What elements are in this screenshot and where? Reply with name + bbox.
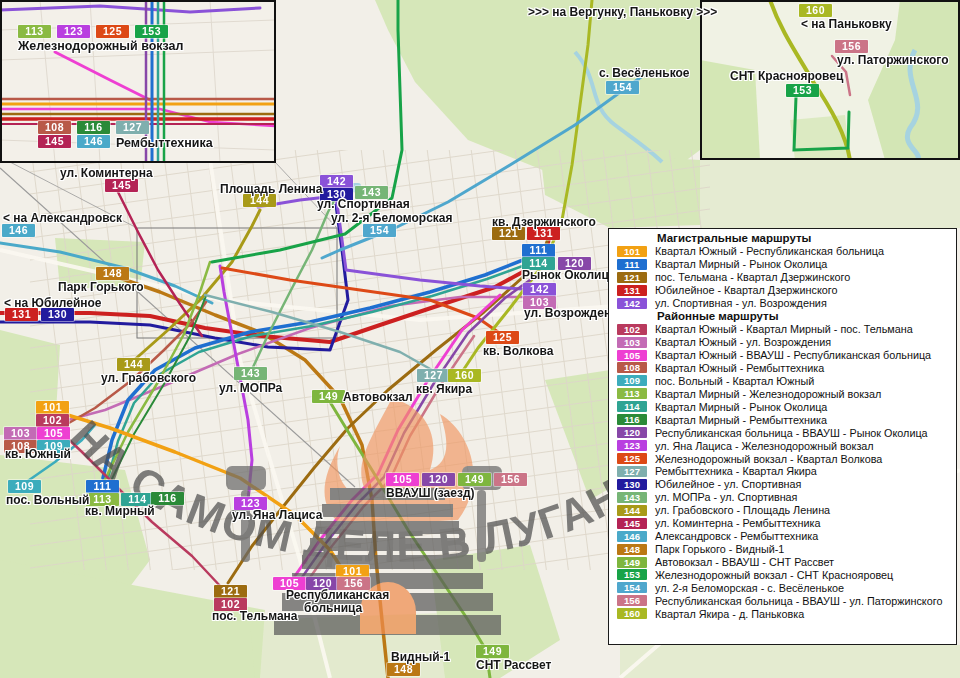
legend-badge-160: 160 bbox=[617, 608, 647, 619]
legend-badge-142: 142 bbox=[617, 298, 647, 309]
legend-badge-153: 153 bbox=[617, 569, 647, 580]
legend-route-name: Квартал Якира - д. Паньковка bbox=[655, 608, 804, 620]
legend-row-101: 101Квартал Южный - Республиканская больн… bbox=[617, 245, 952, 258]
legend-badge-101: 101 bbox=[617, 246, 647, 257]
legend-route-name: Квартал Мирный - Рембыттехника bbox=[655, 414, 827, 426]
legend-row-154: 154ул. 2-я Беломорская - с. Весёленькое bbox=[617, 581, 952, 594]
legend-badge-105: 105 bbox=[617, 350, 647, 361]
legend-badge-154: 154 bbox=[617, 582, 647, 593]
legend-route-name: Квартал Южный - Республиканская больница bbox=[655, 245, 884, 257]
legend-badge-144: 144 bbox=[617, 505, 647, 516]
legend-route-name: ул. Коминтерна - Рембыттехника bbox=[655, 517, 820, 529]
legend-badge-114: 114 bbox=[617, 401, 647, 412]
legend-badge-156: 156 bbox=[617, 595, 647, 606]
legend-row-116: 116Квартал Мирный - Рембыттехника bbox=[617, 413, 952, 426]
legend-panel: Магистральные маршруты 101Квартал Южный … bbox=[608, 228, 957, 645]
legend-badge-146: 146 bbox=[617, 531, 647, 542]
legend-route-name: Парк Горького - Видный-1 bbox=[655, 543, 784, 555]
legend-route-name: Железнодорожный вокзал - Квартал Волкова bbox=[655, 453, 882, 465]
legend-main-rows: 101Квартал Южный - Республиканская больн… bbox=[617, 245, 952, 310]
legend-badge-102: 102 bbox=[617, 324, 647, 335]
legend-badge-113: 113 bbox=[617, 388, 647, 399]
legend-row-114: 114Квартал Мирный - Рынок Околица bbox=[617, 400, 952, 413]
legend-badge-149: 149 bbox=[617, 557, 647, 568]
legend-route-name: ул. МОПРа - ул. Спортивная bbox=[655, 491, 797, 503]
legend-route-name: Автовокзал - ВВАУШ - СНТ Рассвет bbox=[655, 556, 834, 568]
legend-row-131: 131Юбилейное - Квартал Дзержинского bbox=[617, 284, 952, 297]
legend-row-103: 103Квартал Южный - ул. Возрождения bbox=[617, 336, 952, 349]
legend-row-149: 149Автовокзал - ВВАУШ - СНТ Рассвет bbox=[617, 556, 952, 569]
legend-row-145: 145ул. Коминтерна - Рембыттехника bbox=[617, 517, 952, 530]
legend-row-130: 130Юбилейное - ул. Спортивная bbox=[617, 478, 952, 491]
transit-map-screenshot: НА САМОМ ДЕЛЕ В ЛУГАНСКЕ 113123125153108… bbox=[0, 0, 960, 678]
legend-route-name: Железнодорожный вокзал - СНТ Красноярове… bbox=[655, 569, 893, 581]
legend-row-148: 148Парк Горького - Видный-1 bbox=[617, 543, 952, 556]
legend-row-102: 102Квартал Южный - Квартал Мирный - пос.… bbox=[617, 323, 952, 336]
legend-route-name: ул. Спортивная - ул. Возрождения bbox=[655, 297, 827, 309]
inset-pankovka-zoom bbox=[700, 0, 960, 160]
legend-badge-121: 121 bbox=[617, 272, 647, 283]
legend-row-109: 109пос. Вольный - Квартал Южный bbox=[617, 374, 952, 387]
legend-row-108: 108Квартал Южный - Рембыттехника bbox=[617, 362, 952, 375]
legend-row-142: 142ул. Спортивная - ул. Возрождения bbox=[617, 297, 952, 310]
legend-badge-116: 116 bbox=[617, 414, 647, 425]
legend-route-name: пос. Тельмана - Квартал Дзержинского bbox=[655, 271, 850, 283]
legend-route-name: Республиканская больница - ВВАУШ - Рынок… bbox=[655, 427, 928, 439]
legend-badge-108: 108 bbox=[617, 362, 647, 373]
legend-route-name: Юбилейное - ул. Спортивная bbox=[655, 478, 801, 490]
legend-route-name: Квартал Южный - Квартал Мирный - пос. Те… bbox=[655, 323, 913, 335]
legend-row-121: 121пос. Тельмана - Квартал Дзержинского bbox=[617, 271, 952, 284]
legend-badge-125: 125 bbox=[617, 453, 647, 464]
legend-district-rows: 102Квартал Южный - Квартал Мирный - пос.… bbox=[617, 323, 952, 621]
legend-main-header: Магистральные маршруты bbox=[617, 232, 952, 245]
legend-route-name: Рембыттехника - Квартал Якира bbox=[655, 465, 817, 477]
legend-row-111: 111Квартал Мирный - Рынок Околица bbox=[617, 258, 952, 271]
legend-row-123: 123ул. Яна Лациса - Железнодорожный вокз… bbox=[617, 439, 952, 452]
legend-route-name: пос. Вольный - Квартал Южный bbox=[655, 375, 814, 387]
legend-badge-111: 111 bbox=[617, 259, 647, 270]
legend-route-name: Квартал Мирный - Рынок Околица bbox=[655, 401, 827, 413]
legend-badge-123: 123 bbox=[617, 440, 647, 451]
legend-badge-131: 131 bbox=[617, 285, 647, 296]
legend-route-name: ул. Грабовского - Площадь Ленина bbox=[655, 504, 830, 516]
legend-badge-109: 109 bbox=[617, 375, 647, 386]
legend-row-144: 144ул. Грабовского - Площадь Ленина bbox=[617, 504, 952, 517]
legend-route-name: Квартал Южный - Рембыттехника bbox=[655, 362, 824, 374]
legend-row-113: 113Квартал Мирный - Железнодорожный вокз… bbox=[617, 387, 952, 400]
legend-badge-148: 148 bbox=[617, 544, 647, 555]
legend-badge-103: 103 bbox=[617, 337, 647, 348]
legend-route-name: Квартал Мирный - Железнодорожный вокзал bbox=[655, 388, 881, 400]
legend-route-name: Александровск - Рембыттехника bbox=[655, 530, 818, 542]
pond bbox=[346, 183, 361, 192]
legend-badge-143: 143 bbox=[617, 492, 647, 503]
legend-row-105: 105Квартал Южный - ВВАУШ - Республиканск… bbox=[617, 349, 952, 362]
legend-route-name: Квартал Южный - ВВАУШ - Республиканская … bbox=[655, 349, 931, 361]
legend-row-125: 125Железнодорожный вокзал - Квартал Волк… bbox=[617, 452, 952, 465]
legend-badge-130: 130 bbox=[617, 479, 647, 490]
legend-district-header: Районные маршруты bbox=[617, 310, 952, 323]
legend-route-name: ул. 2-я Беломорская - с. Весёленькое bbox=[655, 582, 844, 594]
legend-row-146: 146Александровск - Рембыттехника bbox=[617, 530, 952, 543]
legend-route-name: ул. Яна Лациса - Железнодорожный вокзал bbox=[655, 440, 874, 452]
legend-row-160: 160Квартал Якира - д. Паньковка bbox=[617, 607, 952, 620]
legend-route-name: Юбилейное - Квартал Дзержинского bbox=[655, 284, 838, 296]
legend-badge-127: 127 bbox=[617, 466, 647, 477]
legend-row-127: 127Рембыттехника - Квартал Якира bbox=[617, 465, 952, 478]
legend-row-156: 156Республиканская больница - ВВАУШ - ул… bbox=[617, 594, 952, 607]
legend-route-name: Квартал Мирный - Рынок Околица bbox=[655, 258, 827, 270]
legend-row-143: 143ул. МОПРа - ул. Спортивная bbox=[617, 491, 952, 504]
legend-route-name: Квартал Южный - ул. Возрождения bbox=[655, 336, 831, 348]
legend-badge-145: 145 bbox=[617, 518, 647, 529]
legend-route-name: Республиканская больница - ВВАУШ - ул. П… bbox=[655, 595, 942, 607]
inset-station-zoom bbox=[0, 0, 275, 162]
legend-row-120: 120Республиканская больница - ВВАУШ - Ры… bbox=[617, 426, 952, 439]
legend-row-153: 153Железнодорожный вокзал - СНТ Краснояр… bbox=[617, 569, 952, 582]
legend-badge-120: 120 bbox=[617, 427, 647, 438]
